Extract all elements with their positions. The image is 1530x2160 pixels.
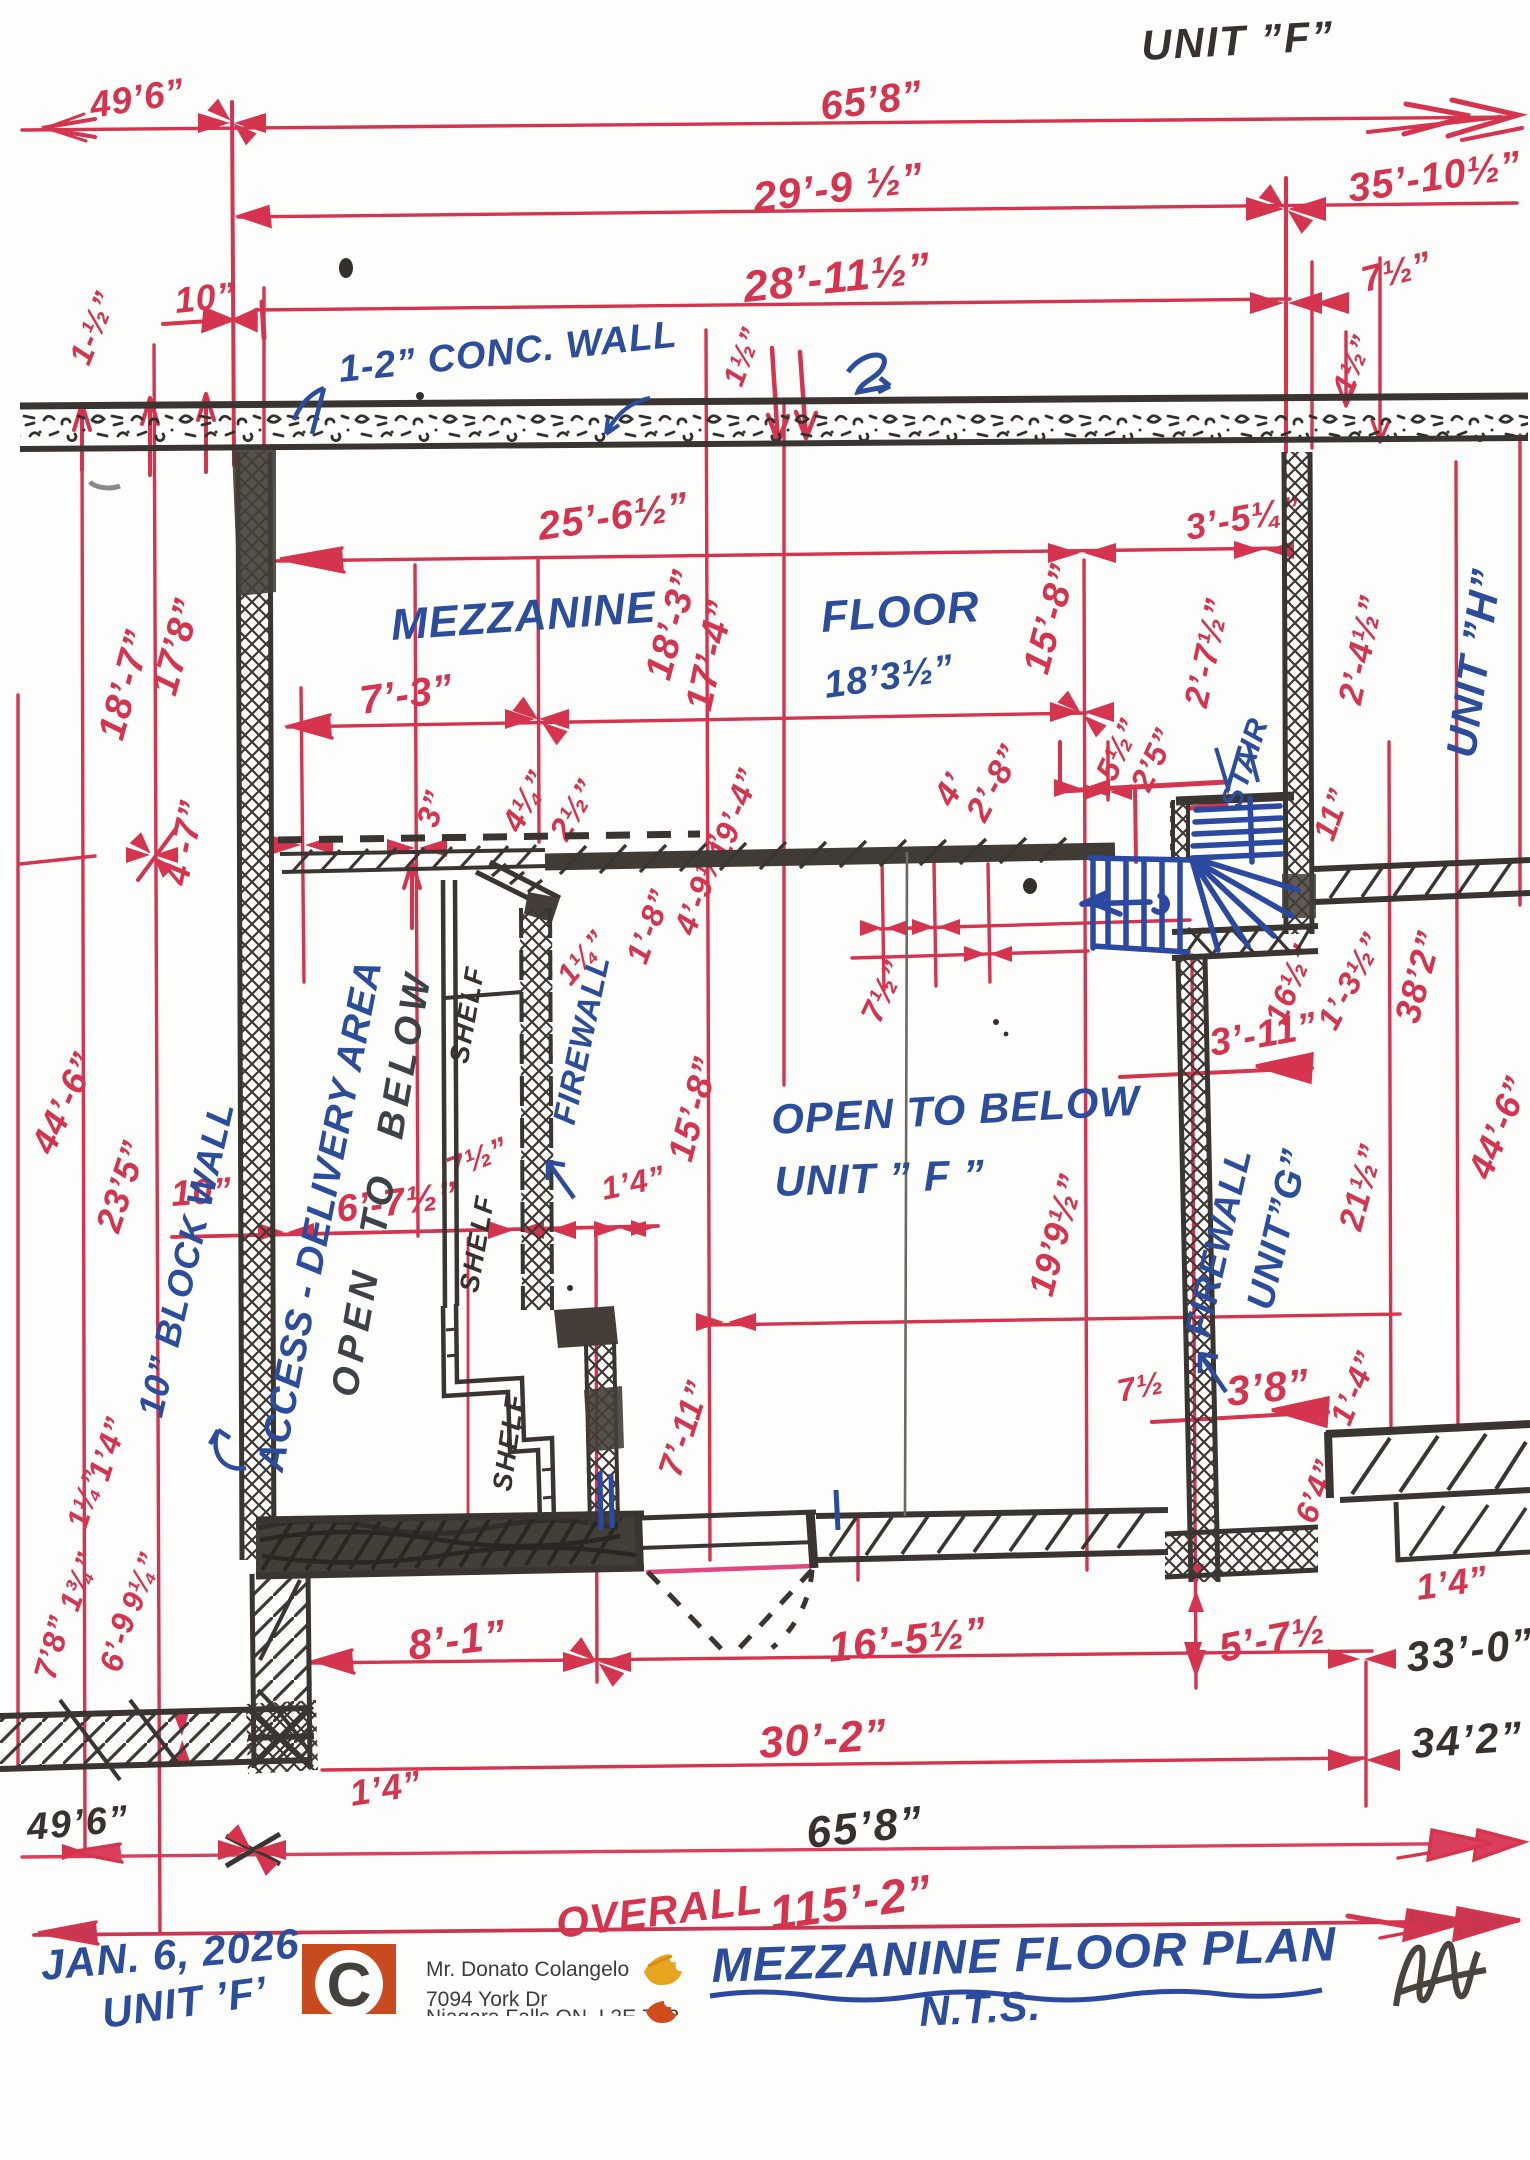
svg-text:35’-10½”: 35’-10½” <box>1345 143 1524 211</box>
svg-text:Mr. Donato Colangelo: Mr. Donato Colangelo <box>426 1958 629 1981</box>
svg-text:30’-2”: 30’-2” <box>757 1710 888 1768</box>
svg-text:OPEN TO BELOW: OPEN TO BELOW <box>770 1077 1144 1143</box>
svg-text:44’-6”: 44’-6” <box>22 1046 104 1160</box>
svg-text:MEZZANINE: MEZZANINE <box>389 583 658 650</box>
svg-text:6’4”: 6’4” <box>1288 1455 1344 1528</box>
svg-text:2’-7½”: 2’-7½” <box>1177 595 1237 711</box>
svg-text:7’-11”: 7’-11” <box>651 1376 717 1481</box>
svg-text:1½”: 1½” <box>1327 331 1380 399</box>
svg-text:1-2” CONC. WALL: 1-2” CONC. WALL <box>337 314 680 391</box>
svg-text:25’-6½”: 25’-6½” <box>534 484 691 549</box>
svg-text:21½”: 21½” <box>1331 1140 1391 1235</box>
svg-text:4’-7”: 4’-7” <box>155 797 213 890</box>
svg-text:16’-5½”: 16’-5½” <box>826 1608 989 1671</box>
svg-text:34’2”: 34’2” <box>1409 1712 1525 1767</box>
svg-text:18’3½”: 18’3½” <box>821 647 956 707</box>
svg-text:33’-0”: 33’-0” <box>1403 1619 1530 1681</box>
svg-text:FLOOR: FLOOR <box>819 582 981 642</box>
svg-text:7’8”: 7’8” <box>27 1611 78 1683</box>
svg-text:1’-4”: 1’-4” <box>1323 1346 1385 1430</box>
svg-text:7’-3”: 7’-3” <box>357 666 456 723</box>
svg-text:2’-4½”: 2’-4½” <box>1331 592 1391 708</box>
svg-text:1¾”: 1¾” <box>53 1548 104 1615</box>
svg-text:15’-8”: 15’-8” <box>1016 560 1085 679</box>
svg-text:1’4”: 1’4” <box>598 1158 669 1207</box>
svg-text:49’6”: 49’6” <box>86 70 188 126</box>
svg-text:6’-9: 6’-9 <box>92 1609 142 1675</box>
svg-text:N.T.S.: N.T.S. <box>918 1982 1042 2035</box>
svg-text:65’8”: 65’8” <box>818 73 925 129</box>
svg-text:3’8”: 3’8” <box>1224 1359 1312 1414</box>
svg-text:SHELF: SHELF <box>444 963 491 1065</box>
svg-text:15’-8”: 15’-8” <box>659 1052 726 1165</box>
svg-text:44’-6”: 44’-6” <box>1459 1070 1530 1185</box>
svg-text:1½”: 1½” <box>717 323 768 390</box>
svg-text:C: C <box>327 1951 372 2020</box>
svg-text:UNIT ”F”: UNIT ”F” <box>1140 12 1336 69</box>
svg-text:1’4”: 1’4” <box>1413 1557 1490 1608</box>
svg-text:7½”: 7½” <box>853 955 912 1028</box>
svg-text:49’6”: 49’6” <box>24 1798 131 1849</box>
svg-text:7½: 7½ <box>1114 1364 1167 1409</box>
svg-text:19’9½”: 19’9½” <box>1020 1170 1092 1300</box>
svg-text:OVERALL: OVERALL <box>553 1875 765 1947</box>
svg-text:10”: 10” <box>173 274 238 321</box>
svg-text:UNIT ” F ”: UNIT ” F ” <box>774 1151 986 1205</box>
svg-text:1’-3½”: 1’-3½” <box>1310 927 1391 1036</box>
svg-text:7½”: 7½” <box>441 1129 513 1186</box>
svg-text:5’-7½: 5’-7½ <box>1215 1607 1329 1671</box>
svg-text:UNIT ”H”: UNIT ”H” <box>1437 566 1510 761</box>
svg-text:FIREWALL: FIREWALL <box>546 952 617 1127</box>
svg-text:1-½”: 1-½” <box>62 286 124 369</box>
svg-text:23’5”: 23’5” <box>87 1136 155 1238</box>
svg-text:7½”: 7½” <box>1357 243 1436 300</box>
svg-text:SHELF: SHELF <box>454 1192 501 1294</box>
svg-text:115’-2”: 115’-2” <box>766 1866 935 1941</box>
svg-text:1¼”: 1¼” <box>61 1466 111 1533</box>
svg-text:38’2”: 38’2” <box>1386 927 1450 1028</box>
